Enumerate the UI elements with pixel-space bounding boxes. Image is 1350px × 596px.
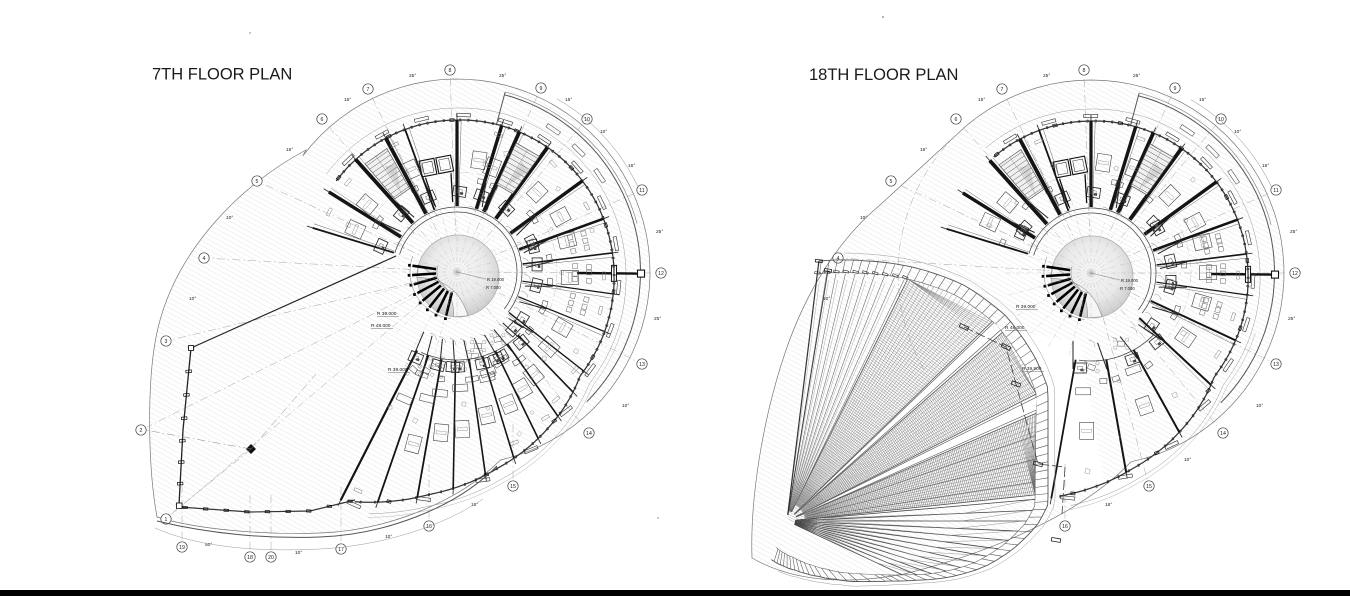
svg-text:15°: 15° (344, 97, 351, 103)
svg-text:16°: 16° (628, 163, 635, 169)
svg-text:8: 8 (1083, 68, 1086, 74)
svg-text:16°: 16° (1262, 163, 1269, 169)
svg-text:10°: 10° (823, 296, 830, 302)
svg-text:10°: 10° (1256, 403, 1263, 409)
svg-text:R 7.000: R 7.000 (1120, 286, 1135, 291)
svg-text:11: 11 (639, 188, 644, 194)
svg-text:5: 5 (890, 179, 893, 185)
svg-text:R 19.000: R 19.000 (487, 277, 505, 282)
svg-text:3: 3 (165, 339, 168, 345)
svg-text:10°: 10° (622, 403, 629, 409)
svg-text:25°: 25° (409, 73, 416, 79)
svg-text:25°: 25° (1133, 73, 1140, 79)
svg-text:11: 11 (1273, 188, 1278, 194)
svg-text:15°: 15° (978, 97, 985, 103)
svg-text:10°: 10° (600, 129, 607, 135)
svg-text:10°: 10° (860, 215, 867, 221)
svg-text:25°: 25° (1288, 316, 1295, 322)
svg-text:10°: 10° (1184, 457, 1191, 463)
svg-text:25°: 25° (1043, 73, 1050, 79)
svg-text:12: 12 (1292, 271, 1298, 277)
svg-text:14: 14 (1220, 431, 1226, 437)
svg-text:10: 10 (1218, 117, 1224, 123)
svg-text:25°: 25° (499, 73, 506, 79)
svg-text:7TH FLOOR PLAN: 7TH FLOOR PLAN (152, 66, 292, 84)
svg-text:14: 14 (586, 431, 592, 437)
svg-text:9: 9 (1174, 86, 1177, 92)
svg-text:25°: 25° (656, 229, 663, 235)
svg-text:50°: 50° (205, 542, 212, 548)
svg-text:25°: 25° (1290, 229, 1297, 235)
svg-text:1: 1 (165, 517, 168, 523)
svg-text:10°: 10° (226, 215, 233, 221)
svg-text:16°: 16° (920, 147, 927, 153)
svg-text:R 39.000: R 39.000 (388, 367, 408, 373)
svg-text:10°: 10° (189, 296, 196, 302)
svg-text:R 48.000: R 48.000 (1005, 325, 1025, 331)
svg-text:2: 2 (140, 428, 143, 434)
svg-text:16: 16 (1062, 524, 1068, 530)
svg-text:8: 8 (449, 68, 452, 74)
svg-text:16°: 16° (286, 147, 293, 153)
svg-text:18TH FLOOR PLAN: 18TH FLOOR PLAN (809, 66, 958, 84)
svg-text:6: 6 (321, 117, 324, 123)
svg-text:15: 15 (510, 484, 516, 490)
svg-text:4: 4 (203, 256, 206, 262)
svg-text:16: 16 (426, 524, 432, 530)
svg-text:13: 13 (639, 362, 645, 368)
svg-text:25°: 25° (654, 316, 661, 322)
svg-text:20: 20 (268, 555, 274, 561)
svg-text:10°: 10° (295, 550, 302, 556)
svg-text:R 7.000: R 7.000 (486, 285, 501, 290)
svg-text:6: 6 (955, 117, 958, 123)
svg-text:5: 5 (256, 179, 259, 185)
svg-text:9: 9 (540, 86, 543, 92)
svg-text:13: 13 (1273, 362, 1279, 368)
svg-text:R 19.000: R 19.000 (1121, 278, 1139, 283)
svg-text:15°: 15° (565, 97, 572, 103)
svg-text:7: 7 (1001, 87, 1004, 93)
svg-text:7: 7 (367, 87, 370, 93)
svg-text:R 48.000: R 48.000 (371, 323, 391, 329)
svg-text:15°: 15° (1199, 97, 1206, 103)
svg-text:12: 12 (658, 271, 664, 277)
svg-text:19: 19 (179, 545, 185, 551)
svg-text:15: 15 (1146, 484, 1152, 490)
svg-text:R 39.000: R 39.000 (1016, 304, 1036, 310)
svg-text:18°: 18° (1105, 502, 1112, 508)
svg-text:R 39.000: R 39.000 (377, 311, 397, 317)
svg-text:18: 18 (247, 555, 253, 561)
